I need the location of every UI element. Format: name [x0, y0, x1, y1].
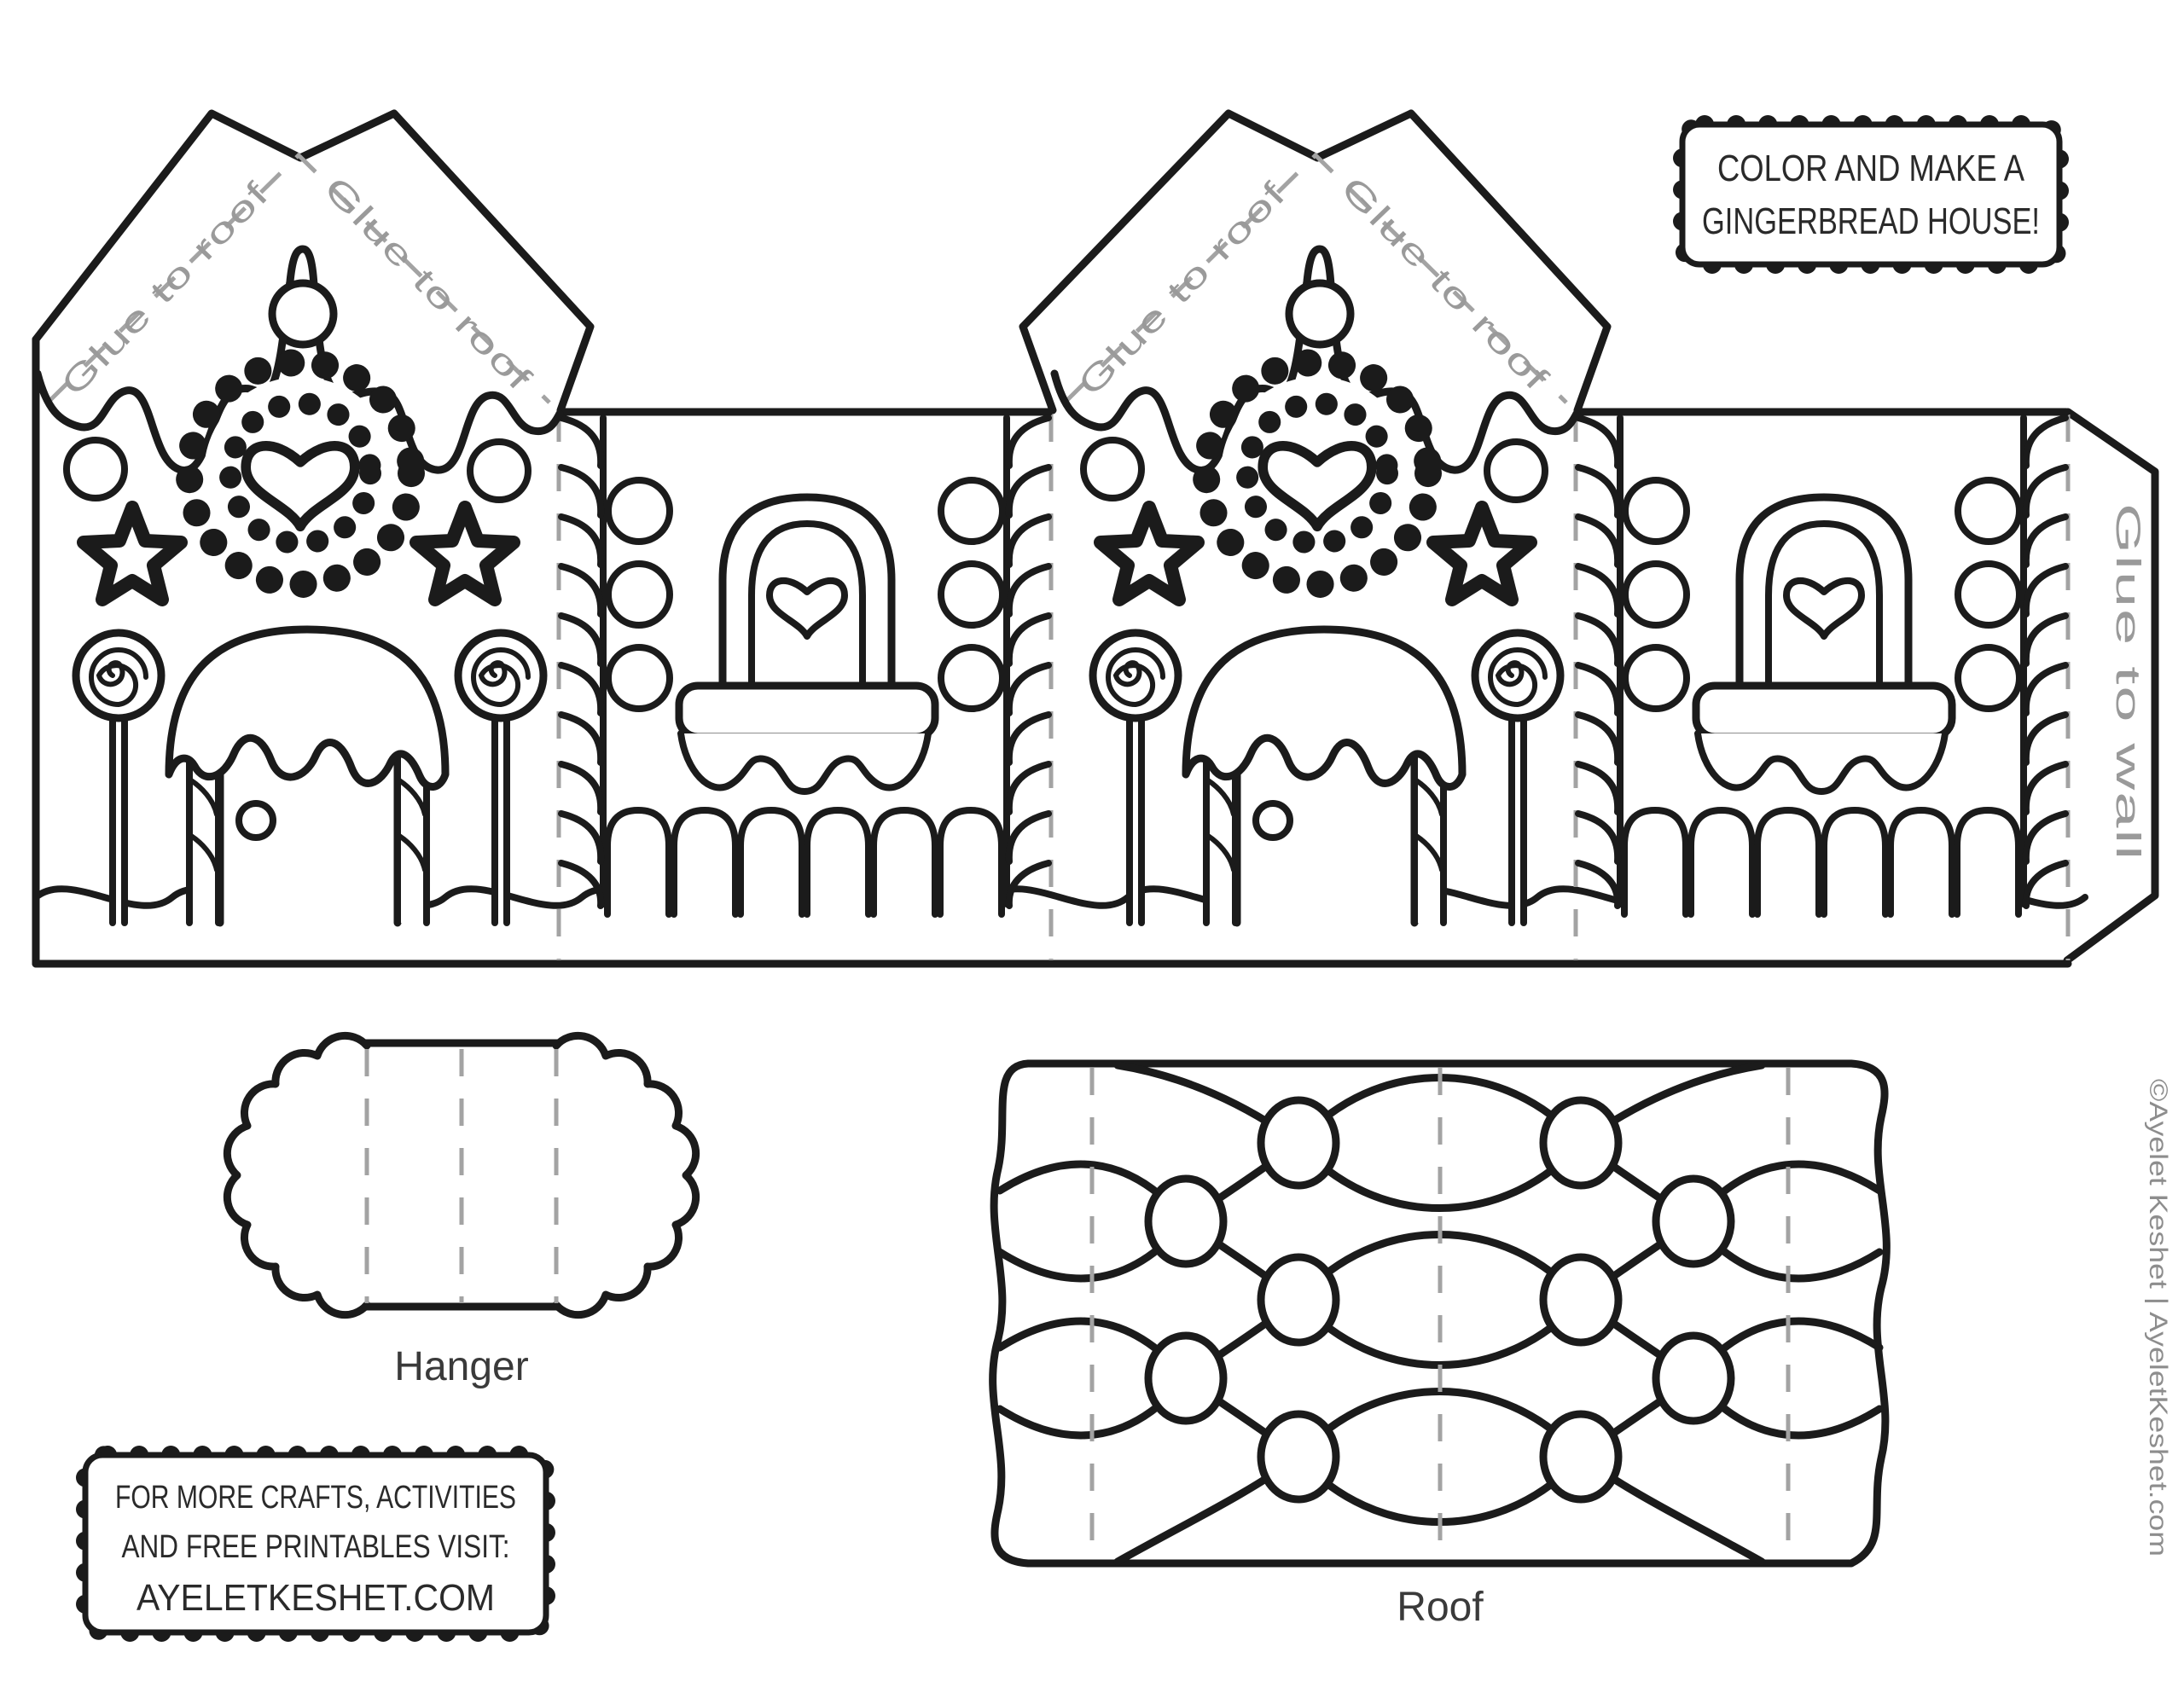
- house-front-2: [1054, 170, 1577, 923]
- info-line-1: FOR MORE CRAFTS, ACTIVITIES: [115, 1480, 516, 1516]
- house-front-1: [38, 170, 560, 923]
- hanger-outline: [227, 1035, 367, 1314]
- hanger-outline: [556, 1035, 696, 1314]
- info-line-3: AYELETKESHET.COM: [136, 1577, 495, 1619]
- roof-label: Roof: [1397, 1585, 1484, 1630]
- glue-to-wall-label: Glue to wall: [2109, 503, 2146, 861]
- info-line-2: AND FREE PRINTABLES VISIT:: [122, 1529, 510, 1565]
- info-box: FOR MORE CRAFTS, ACTIVITIES AND FREE PRI…: [85, 1455, 546, 1632]
- gingerbread-template-sheet: Glue to roof Glue to roof: [0, 0, 2184, 1687]
- wall-panel-2: [1577, 412, 2066, 914]
- hanger-label: Hanger: [394, 1344, 528, 1389]
- title-line-1: COLOR AND MAKE A: [1717, 148, 2025, 189]
- title-box: COLOR AND MAKE A GINGERBREAD HOUSE!: [1682, 125, 2059, 264]
- roof-piece: Roof: [993, 1064, 1887, 1630]
- hanger-piece: Hanger: [227, 1035, 695, 1389]
- wall-panel-1: [561, 412, 1049, 914]
- title-line-2: GINGERBREAD HOUSE!: [1702, 200, 2040, 242]
- copyright-credit: ©Ayelet Keshet | AyeletKeshet.com: [2144, 1079, 2172, 1557]
